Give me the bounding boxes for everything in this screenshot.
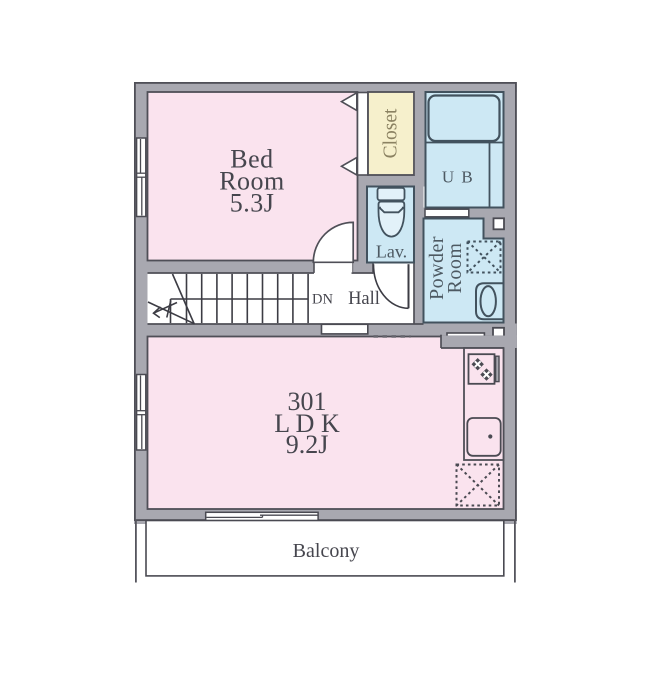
svg-text:Hall: Hall <box>348 289 380 309</box>
svg-text:Closet: Closet <box>380 108 401 158</box>
svg-text:U B: U B <box>442 168 474 187</box>
svg-text:Lav.: Lav. <box>376 242 407 262</box>
svg-text:Room: Room <box>444 243 466 294</box>
svg-text:Balcony: Balcony <box>293 540 360 562</box>
svg-text:DN: DN <box>312 292 333 308</box>
svg-text:5.3J: 5.3J <box>230 189 275 218</box>
svg-text:9.2J: 9.2J <box>286 430 329 459</box>
